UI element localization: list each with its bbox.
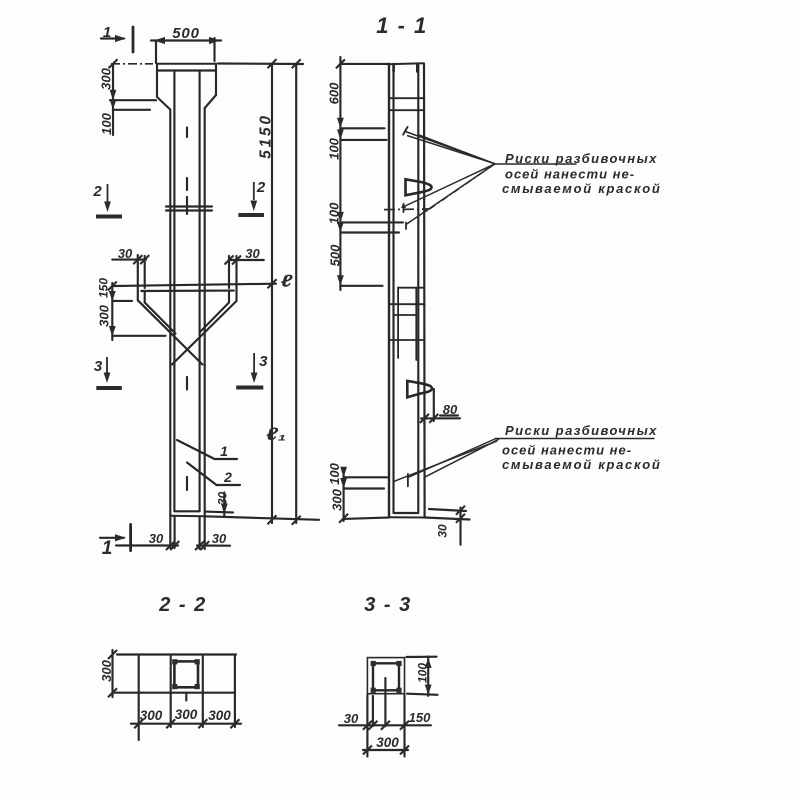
svg-text:300: 300: [330, 488, 345, 510]
svg-text:500: 500: [172, 25, 199, 42]
svg-text:600: 600: [327, 82, 342, 104]
svg-text:5150: 5150: [258, 113, 275, 159]
svg-text:смываемой краской: смываемой краской: [502, 181, 662, 196]
svg-text:Риски разбивочных: Риски разбивочных: [505, 151, 658, 166]
svg-text:30: 30: [436, 524, 450, 538]
svg-text:100: 100: [327, 202, 342, 224]
svg-text:300: 300: [208, 708, 231, 723]
svg-text:1 - 1: 1 - 1: [376, 13, 428, 38]
svg-text:30: 30: [149, 531, 164, 546]
svg-text:300: 300: [99, 67, 114, 89]
svg-text:осей нанести не-: осей нанести не-: [502, 443, 632, 458]
svg-text:осей нанести не-: осей нанести не-: [505, 167, 635, 182]
svg-text:300: 300: [175, 707, 198, 722]
svg-text:1: 1: [103, 24, 111, 41]
svg-text:3: 3: [259, 353, 268, 370]
svg-text:30: 30: [344, 711, 359, 726]
svg-text:30: 30: [212, 531, 227, 546]
svg-text:30: 30: [245, 246, 260, 261]
svg-text:80: 80: [443, 402, 458, 417]
svg-text:30: 30: [216, 492, 230, 506]
svg-text:1: 1: [102, 538, 113, 559]
svg-text:300: 300: [97, 304, 112, 326]
svg-text:100: 100: [416, 663, 430, 683]
svg-text:3: 3: [94, 358, 103, 375]
svg-text:30: 30: [118, 246, 133, 261]
svg-text:1: 1: [220, 443, 228, 459]
svg-text:500: 500: [328, 244, 343, 266]
svg-text:300: 300: [140, 708, 163, 723]
svg-text:ℓ: ℓ: [281, 272, 294, 291]
svg-text:150: 150: [409, 710, 431, 725]
svg-text:300: 300: [99, 659, 114, 681]
svg-text:300: 300: [376, 735, 399, 750]
svg-text:2 - 2: 2 - 2: [158, 594, 207, 616]
svg-text:100: 100: [99, 112, 114, 134]
svg-text:2: 2: [223, 469, 232, 485]
svg-text:150: 150: [97, 278, 111, 298]
svg-text:2: 2: [256, 179, 266, 196]
svg-text:100: 100: [327, 462, 342, 484]
svg-text:3 - 3: 3 - 3: [364, 594, 412, 616]
svg-text:2: 2: [92, 183, 102, 200]
svg-text:100: 100: [327, 137, 342, 159]
svg-text:ℓ₁: ℓ₁: [266, 424, 286, 444]
svg-text:Риски разбивочных: Риски разбивочных: [505, 423, 658, 438]
svg-text:смываемой краской: смываемой краской: [502, 457, 662, 472]
